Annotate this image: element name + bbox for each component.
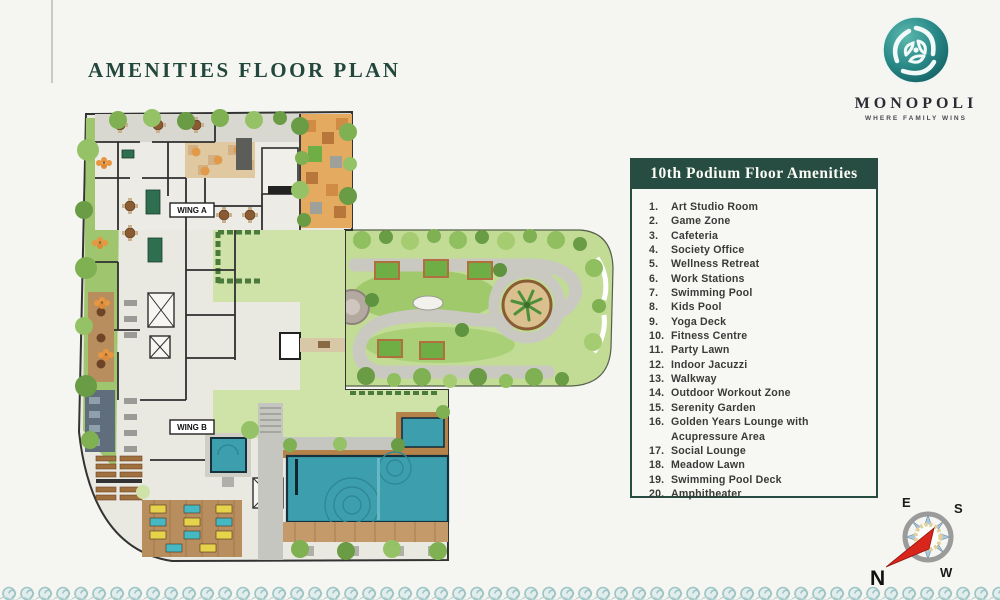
amenity-item: 3.Cafeteria (649, 229, 868, 243)
amenities-panel: 10th Podium Floor Amenities 1.Art Studio… (630, 158, 878, 498)
logo: MONOPOLI WHERE FAMILY WINS (852, 12, 980, 122)
amenity-label: Outdoor Workout Zone (671, 386, 791, 400)
amenity-number: 3. (649, 229, 671, 243)
amenity-item: 4.Society Office (649, 243, 868, 257)
amenity-label: Cafeteria (671, 229, 718, 243)
page-title: AMENITIES FLOOR PLAN (88, 58, 401, 83)
amenity-label: Work Stations (671, 272, 745, 286)
amenity-number: 6. (649, 272, 671, 286)
amenity-number: 10. (649, 329, 671, 343)
amenity-item: 14.Outdoor Workout Zone (649, 386, 868, 400)
amenities-header: 10th Podium Floor Amenities (632, 160, 876, 189)
amenity-number: 17. (649, 444, 671, 458)
amenity-number: 20. (649, 487, 671, 501)
amenity-label: Party Lawn (671, 343, 730, 357)
compass-e-label: E (902, 495, 911, 510)
amenity-item: 17.Social Lounge (649, 444, 868, 458)
title-rule (51, 0, 53, 83)
amenities-list: 1.Art Studio Room2.Game Zone3.Cafeteria4… (632, 189, 876, 501)
amenity-item: 16.Golden Years Lounge with Acupressure … (649, 415, 868, 444)
floor-plan-illustration: WING A WING B (65, 100, 620, 578)
amenity-number: 15. (649, 401, 671, 415)
amenity-label: Walkway (671, 372, 717, 386)
amenity-item: 19.Swimming Pool Deck (649, 473, 868, 487)
amenity-item: 7.Swimming Pool (649, 286, 868, 300)
amenity-label: Swimming Pool (671, 286, 752, 300)
wing-a-label: WING A (177, 206, 207, 215)
amenity-label: Swimming Pool Deck (671, 473, 782, 487)
amenity-number: 1. (649, 200, 671, 214)
amenity-label: Serenity Garden (671, 401, 756, 415)
amenity-item: 6.Work Stations (649, 272, 868, 286)
amenity-number: 8. (649, 300, 671, 314)
amenity-label: Society Office (671, 243, 744, 257)
amenity-label: Wellness Retreat (671, 257, 759, 271)
compass-rose: E S W N (860, 485, 995, 595)
amenity-item: 2.Game Zone (649, 214, 868, 228)
logo-name: MONOPOLI (852, 95, 980, 113)
amenity-number: 11. (649, 343, 671, 357)
amenity-number: 13. (649, 372, 671, 386)
amenity-label: Amphitheater (671, 487, 742, 501)
amenity-item: 10.Fitness Centre (649, 329, 868, 343)
brochure-page: { "page": { "title": "AMENITIES FLOOR PL… (0, 0, 1000, 600)
amenity-label: Meadow Lawn (671, 458, 745, 472)
amenity-label: Yoga Deck (671, 315, 726, 329)
amenity-item: 5.Wellness Retreat (649, 257, 868, 271)
amenity-number: 12. (649, 358, 671, 372)
amenity-number: 19. (649, 473, 671, 487)
amenity-label: Art Studio Room (671, 200, 758, 214)
amenity-label: Social Lounge (671, 444, 746, 458)
amenity-label: Fitness Centre (671, 329, 747, 343)
amenity-item: 13.Walkway (649, 372, 868, 386)
compass-w-label: W (940, 565, 953, 580)
amenity-item: 12.Indoor Jacuzzi (649, 358, 868, 372)
amenity-item: 18.Meadow Lawn (649, 458, 868, 472)
amenity-number: 4. (649, 243, 671, 257)
amenity-label: Indoor Jacuzzi (671, 358, 747, 372)
amenity-number: 14. (649, 386, 671, 400)
amenity-label: Golden Years Lounge with Acupressure Are… (671, 415, 868, 444)
amenity-number: 18. (649, 458, 671, 472)
amenity-number: 16. (649, 415, 671, 444)
amenity-item: 8.Kids Pool (649, 300, 868, 314)
amenity-item: 20.Amphitheater (649, 487, 868, 501)
logo-mark-icon (852, 12, 980, 86)
serenity-garden-area (335, 229, 613, 388)
amenity-number: 7. (649, 286, 671, 300)
wave-border (0, 586, 1000, 600)
amenity-item: 15.Serenity Garden (649, 401, 868, 415)
amenity-number: 5. (649, 257, 671, 271)
amenity-item: 9.Yoga Deck (649, 315, 868, 329)
amenity-number: 2. (649, 214, 671, 228)
amenity-label: Kids Pool (671, 300, 722, 314)
amenity-item: 11.Party Lawn (649, 343, 868, 357)
compass-s-label: S (954, 501, 963, 516)
amenity-item: 1.Art Studio Room (649, 200, 868, 214)
amenity-number: 9. (649, 315, 671, 329)
amenity-label: Game Zone (671, 214, 731, 228)
logo-tagline: WHERE FAMILY WINS (852, 115, 980, 122)
wing-b-label: WING B (177, 423, 207, 432)
